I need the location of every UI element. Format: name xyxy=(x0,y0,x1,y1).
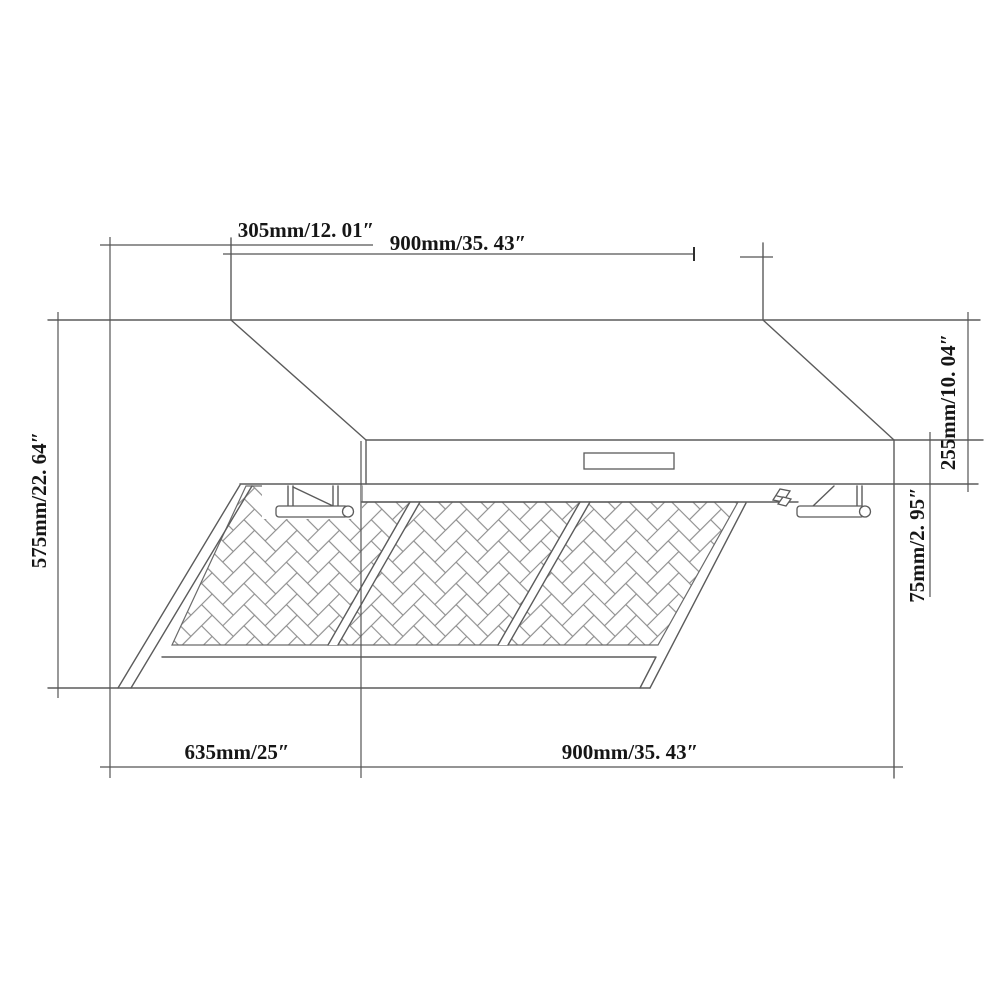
dim-label-bottom-width: 900mm/35. 43″ xyxy=(562,740,698,764)
control-panel xyxy=(584,453,674,469)
left-handle-rod xyxy=(276,506,348,517)
canopy-left-slope xyxy=(231,320,366,440)
range-hood-dimension-drawing: 305mm/12. 01″ 900mm/35. 43″ 575mm/22. 64… xyxy=(0,0,1000,1000)
filter-panel xyxy=(48,485,880,688)
dimension-drawing-canvas: 305mm/12. 01″ 900mm/35. 43″ 575mm/22. 64… xyxy=(0,0,1000,1000)
canopy-right-slope xyxy=(763,320,894,440)
right-handle-rod-cap xyxy=(860,506,871,517)
left-handle-rod-cap xyxy=(343,506,354,517)
dim-label-bottom-depth: 635mm/25″ xyxy=(185,740,290,764)
dim-label-upper-right-height: 255mm/10. 04″ xyxy=(936,334,960,470)
right-handle-rod xyxy=(797,506,864,517)
dim-label-overall-height: 575mm/22. 64″ xyxy=(27,432,51,568)
panel-right-end-cap xyxy=(640,657,656,688)
dim-label-lower-right-height: 75mm/2. 95″ xyxy=(905,487,929,602)
dim-label-top-width: 900mm/35. 43″ xyxy=(390,231,526,255)
mesh-filter-area xyxy=(172,486,738,645)
dim-label-top-offset: 305mm/12. 01″ xyxy=(238,218,374,242)
